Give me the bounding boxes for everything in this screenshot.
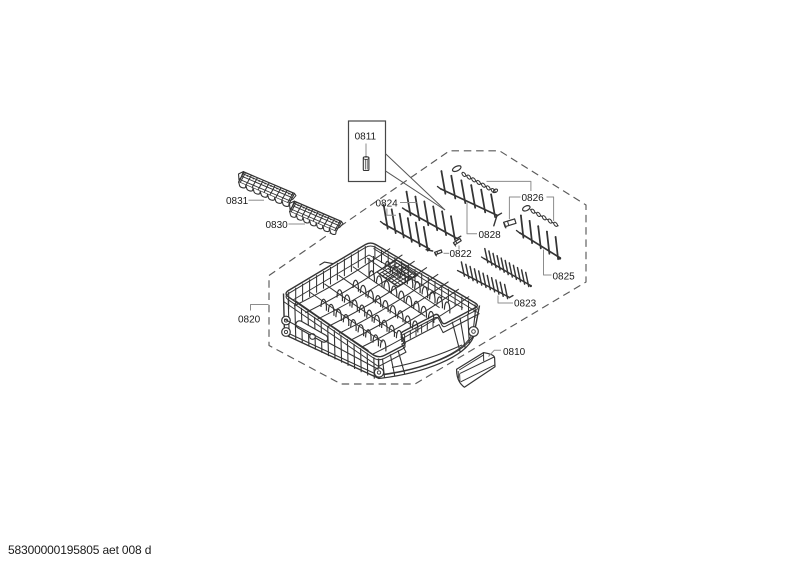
svg-text:0822: 0822 [450,249,473,260]
svg-text:0830: 0830 [266,220,289,231]
svg-text:0823: 0823 [514,298,537,309]
svg-text:58300000195805 aet 008 d: 58300000195805 aet 008 d [8,543,151,557]
svg-text:0820: 0820 [238,314,261,325]
svg-text:0831: 0831 [226,196,249,207]
svg-text:0828: 0828 [479,230,502,241]
svg-text:0826: 0826 [522,193,545,204]
svg-text:0825: 0825 [553,271,576,282]
svg-text:0824: 0824 [376,199,399,210]
svg-text:0811: 0811 [355,132,377,143]
svg-text:0810: 0810 [503,347,526,358]
